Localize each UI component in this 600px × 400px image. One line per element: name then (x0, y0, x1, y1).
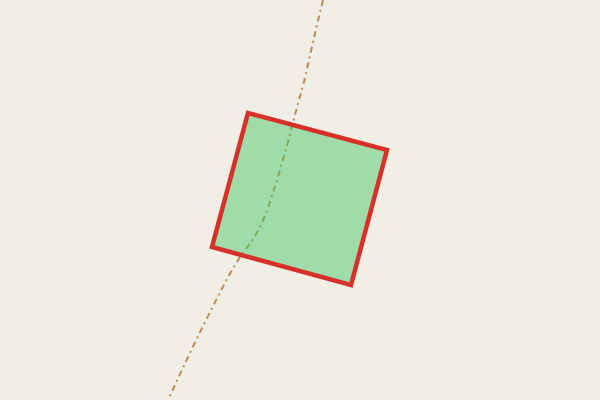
map-canvas[interactable] (0, 0, 600, 400)
map-viewport[interactable] (0, 0, 600, 400)
